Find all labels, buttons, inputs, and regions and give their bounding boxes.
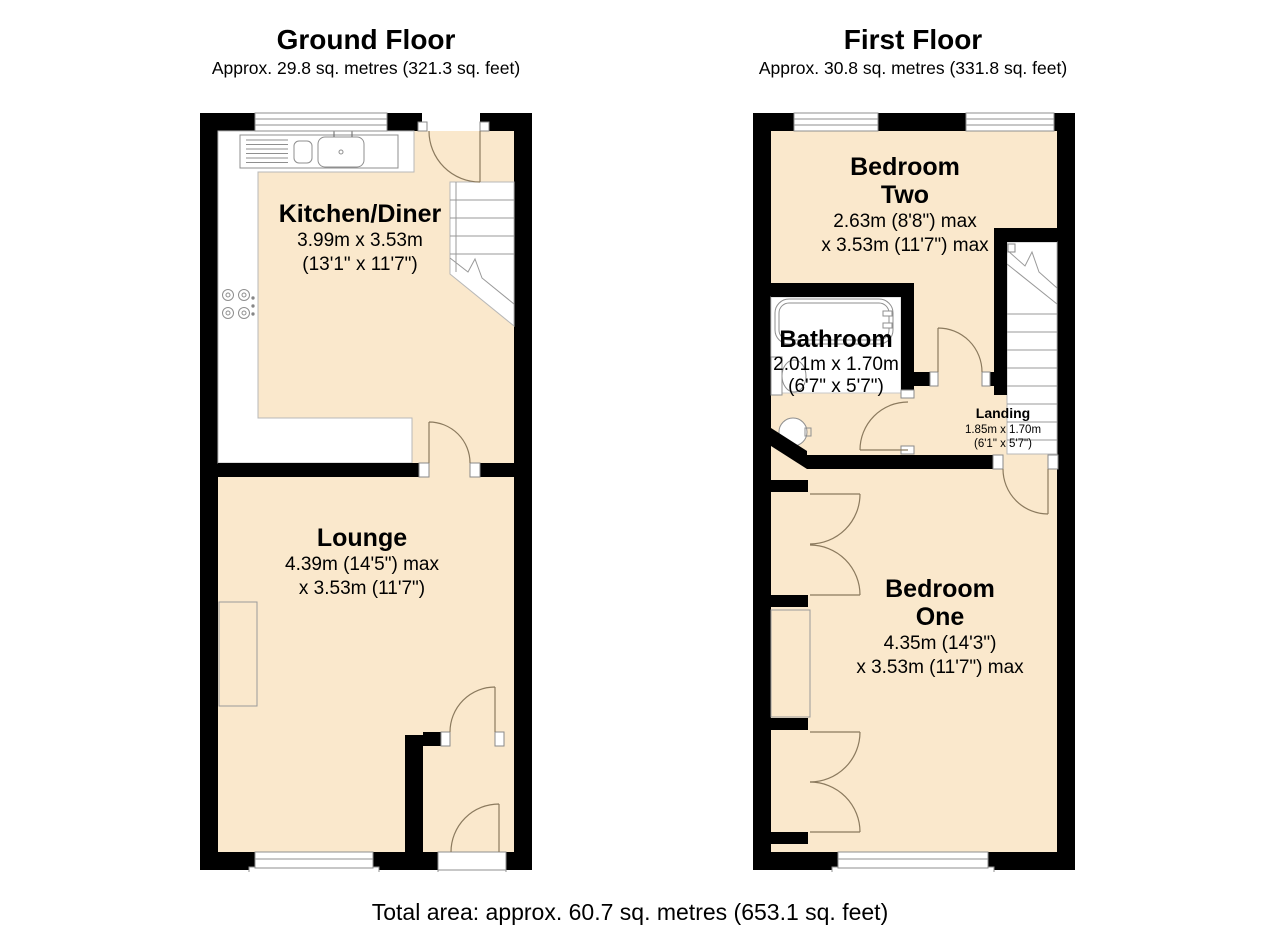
kitchen-sink [240, 129, 398, 168]
ground-floor-area-subtitle: Approx. 29.8 sq. metres (321.3 sq. feet) [166, 56, 566, 80]
room-label-kitchen-diner: Kitchen/Diner 3.99m x 3.53m (13'1" x 11'… [279, 200, 442, 275]
lounge-name: Lounge [317, 524, 407, 552]
bathroom-name: Bathroom [779, 326, 892, 353]
first-floor-plan: Bedroom Two 2.63m (8'8") max x 3.53m (11… [748, 110, 1078, 872]
kitchen-window [255, 113, 387, 131]
landing-name: Landing [976, 405, 1030, 421]
bedroom-two-name-1: Bedroom [850, 153, 960, 181]
first-floor-header: First Floor Approx. 30.8 sq. metres (331… [713, 24, 1113, 80]
ground-floor-plan: Kitchen/Diner 3.99m x 3.53m (13'1" x 11'… [196, 110, 536, 872]
bedroom-two-window-left [794, 113, 878, 131]
front-door-threshold [438, 852, 506, 872]
bathroom-dims-2: (6'7" x 5'7") [788, 376, 884, 397]
bedroom-one-dims-2: x 3.53m (11'7") max [856, 657, 1024, 678]
bedroom-one-window [832, 852, 994, 872]
total-area-label: Total area: approx. 60.7 sq. metres (653… [0, 899, 1260, 926]
stairs [1007, 242, 1057, 454]
lounge-window [249, 852, 379, 872]
room-label-bathroom: Bathroom 2.01m x 1.70m (6'7" x 5'7") [773, 326, 899, 397]
lounge-dims-1: 4.39m (14'5") max [285, 554, 439, 575]
bedroom-one-dims-1: 4.35m (14'3") [884, 633, 997, 654]
landing-dims-2: (6'1" x 5'7") [974, 438, 1032, 450]
first-floor-area-subtitle: Approx. 30.8 sq. metres (331.8 sq. feet) [713, 56, 1113, 80]
bathroom-dims-1: 2.01m x 1.70m [773, 354, 899, 375]
bedroom-two-dims-2: x 3.53m (11'7") max [821, 235, 989, 256]
first-floor-title: First Floor [713, 24, 1113, 56]
room-label-landing: Landing 1.85m x 1.70m (6'1" x 5'7") [965, 405, 1041, 450]
bedroom-two-dims-1: 2.63m (8'8") max [833, 211, 977, 232]
bedroom-two-window-right [966, 113, 1054, 131]
ground-floor-title: Ground Floor [166, 24, 566, 56]
lounge-dims-2: x 3.53m (11'7") [299, 578, 425, 599]
bedroom-one-name-2: One [916, 603, 965, 631]
kitchen-name: Kitchen/Diner [279, 200, 442, 228]
bedroom-one-name-1: Bedroom [885, 575, 995, 603]
landing-dims-1: 1.85m x 1.70m [965, 424, 1041, 436]
kitchen-dims-1: 3.99m x 3.53m [297, 230, 423, 251]
ground-floor-header: Ground Floor Approx. 29.8 sq. metres (32… [166, 24, 566, 80]
kitchen-dims-2: (13'1" x 11'7") [302, 254, 417, 275]
back-door-opening [422, 113, 480, 131]
bedroom-two-name-2: Two [881, 181, 929, 209]
